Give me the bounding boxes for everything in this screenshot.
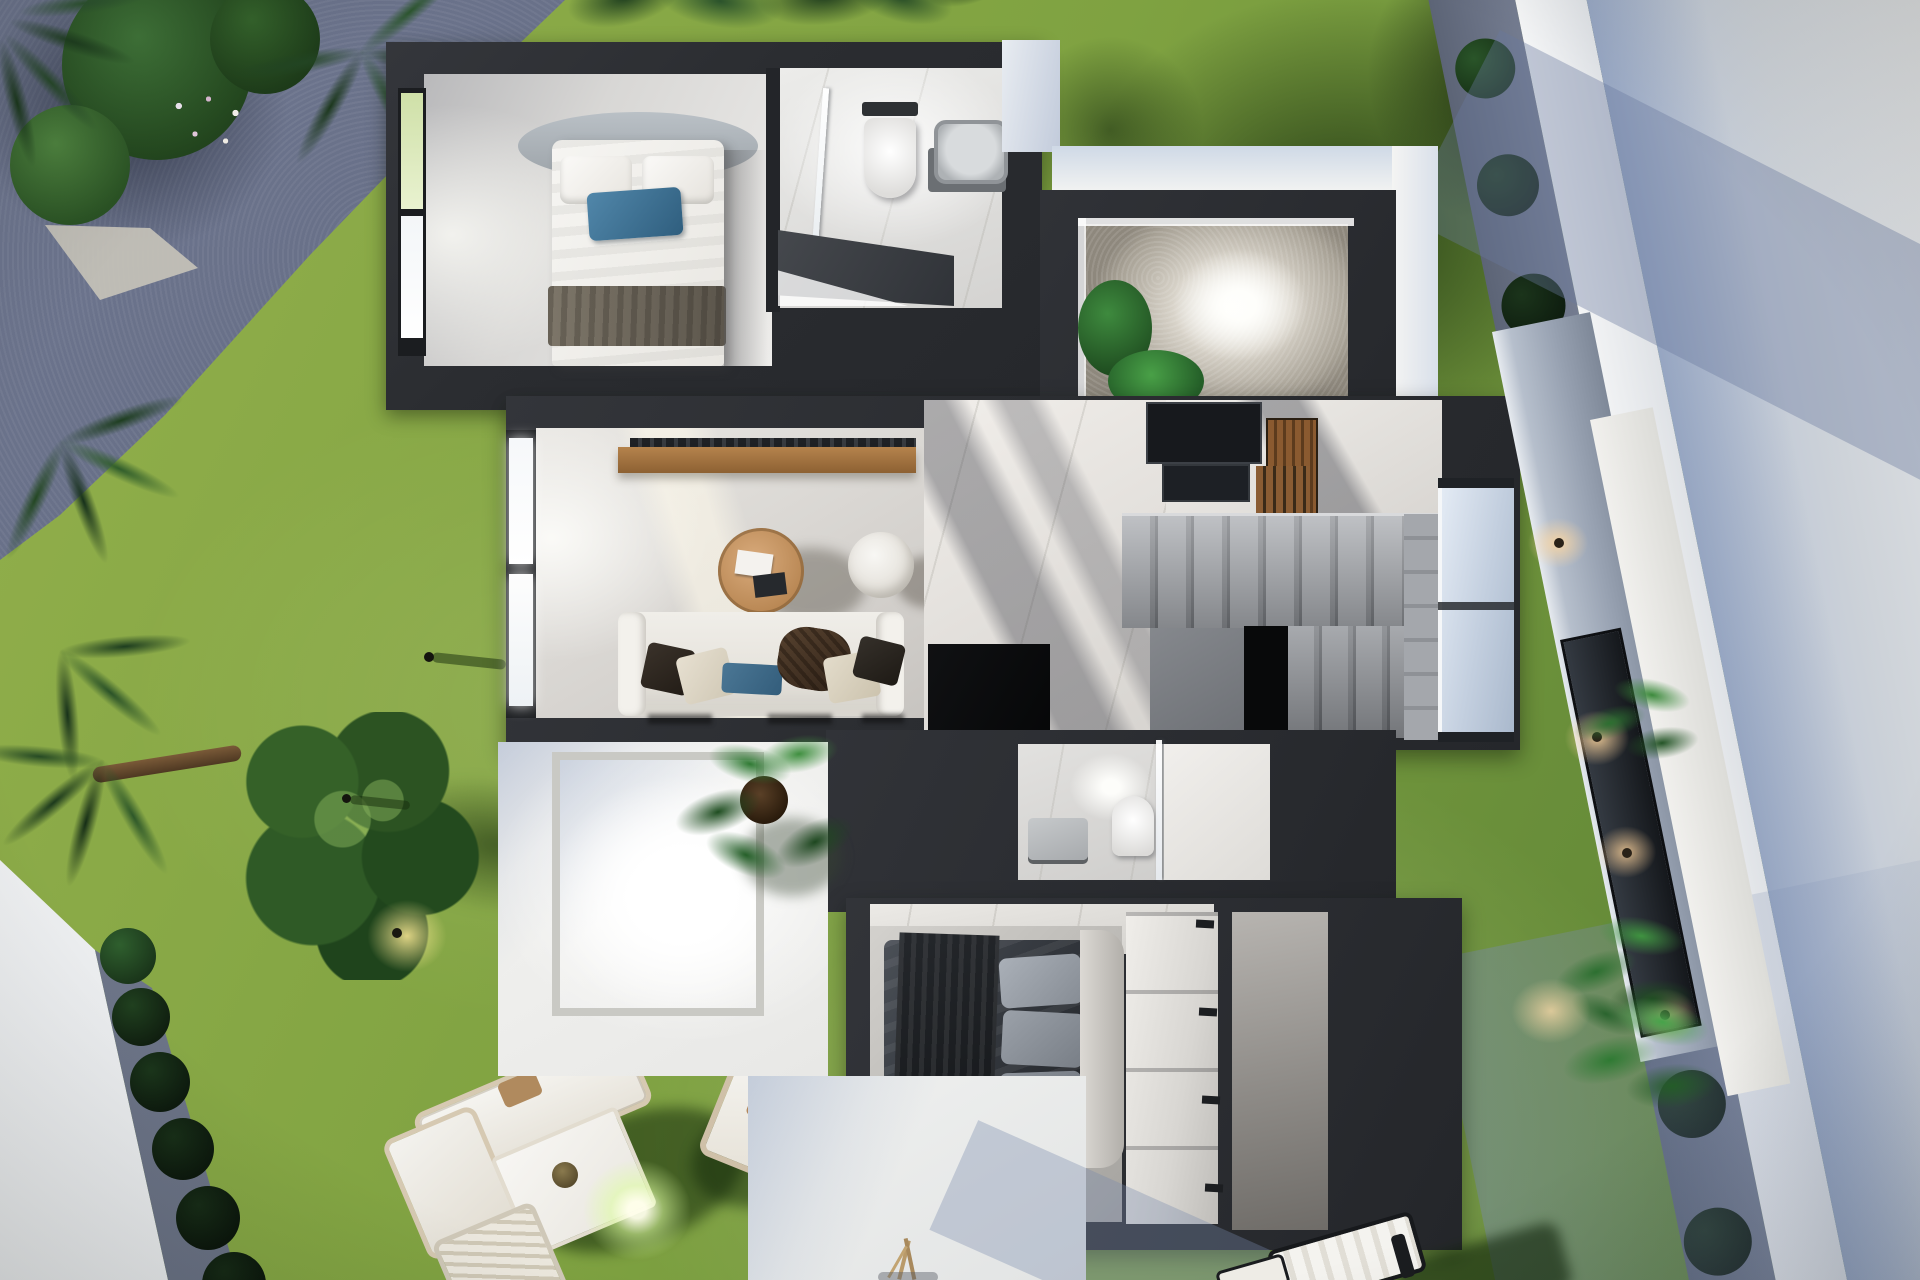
sofa-foot-shadow [768,714,832,724]
wardrobe-handle [1196,920,1214,929]
shrub [130,1052,190,1112]
lawn-spot-light-glow [352,886,462,986]
walkway-sliver-top [1002,40,1060,152]
shrub [176,1186,240,1250]
guest-bath-glass-partition [1156,740,1162,880]
bollard-post [1622,848,1632,858]
living-window-pane [509,574,533,706]
sofa-armrest [618,612,646,716]
terrace-plant-leaves [660,724,860,914]
gray-throw-blanket [548,286,726,346]
walkway-leaf-plant-upper [1562,666,1712,786]
palm-fronds-corner [0,0,270,270]
wardrobe-marble-panels [1126,912,1218,1224]
dry-plant [872,1238,942,1280]
bed2-pillow [1001,1010,1086,1068]
floorplan-render-scene [0,0,1920,1280]
toilet-cistern [862,102,918,116]
sofa-foot-shadow [862,714,904,723]
palm-frond [86,746,182,888]
sprinkler-head [424,652,434,662]
blue-accent-pillow [586,187,683,241]
white-pouf [848,532,914,598]
stair-wood-railing [1256,466,1310,518]
wall-lantern-glow [1496,966,1606,1056]
bedroom-window-pane-light [401,216,423,338]
palm-cluster-left-upper [0,320,180,560]
sprinkler-head [342,794,351,803]
living-window-pane [509,438,533,564]
shrub [112,988,170,1046]
stairs-side-floor [1150,628,1244,736]
stairs-void-between [1244,626,1288,738]
sofa-foot-shadow [648,714,712,724]
wardrobe-handle [1199,1008,1217,1017]
palm-cluster-left-lower [0,640,220,880]
toilet [864,118,916,198]
bedroom-window-pane-garden [401,93,423,209]
guest-bath-bright-area [1164,744,1270,880]
stairs-lower-flight [1288,626,1404,738]
sink-basin [934,120,1008,184]
wardrobe-handle [1202,1096,1220,1105]
stair-window-frame-mid [1438,602,1514,610]
guest-toilet [1112,796,1154,856]
stair-window-frame-top [1438,478,1514,488]
bedroom2-hall-strip [1232,912,1328,1230]
media-wood-bench [618,447,916,473]
bed2-pillow [998,953,1083,1009]
lawn-spot-light [392,928,402,938]
dry-plant-shadow [878,1272,938,1280]
bed2-curved-headboard [1080,930,1124,1168]
skylight-dark-pane [1146,402,1262,464]
stair-window-band [1438,478,1514,742]
interior-wall-divider [766,68,780,312]
wardrobe-handle [1205,1184,1223,1193]
terrace-glow-light [562,1140,712,1280]
courtyard-white-band-right [1392,146,1438,436]
bollard-post [1554,538,1564,548]
guest-sink [1028,818,1088,860]
courtyard-white-band-top [1052,146,1408,192]
shrub [100,928,156,984]
media-vent-strip [630,438,916,447]
shrub [152,1118,214,1180]
courtyard-inner-lit-edge [1078,218,1354,226]
bedroom-floor-shadow [724,150,768,366]
skylight-dark-pane-small [1162,464,1250,502]
table-tablet [753,572,787,598]
sofa-pillow-blue [721,662,782,695]
